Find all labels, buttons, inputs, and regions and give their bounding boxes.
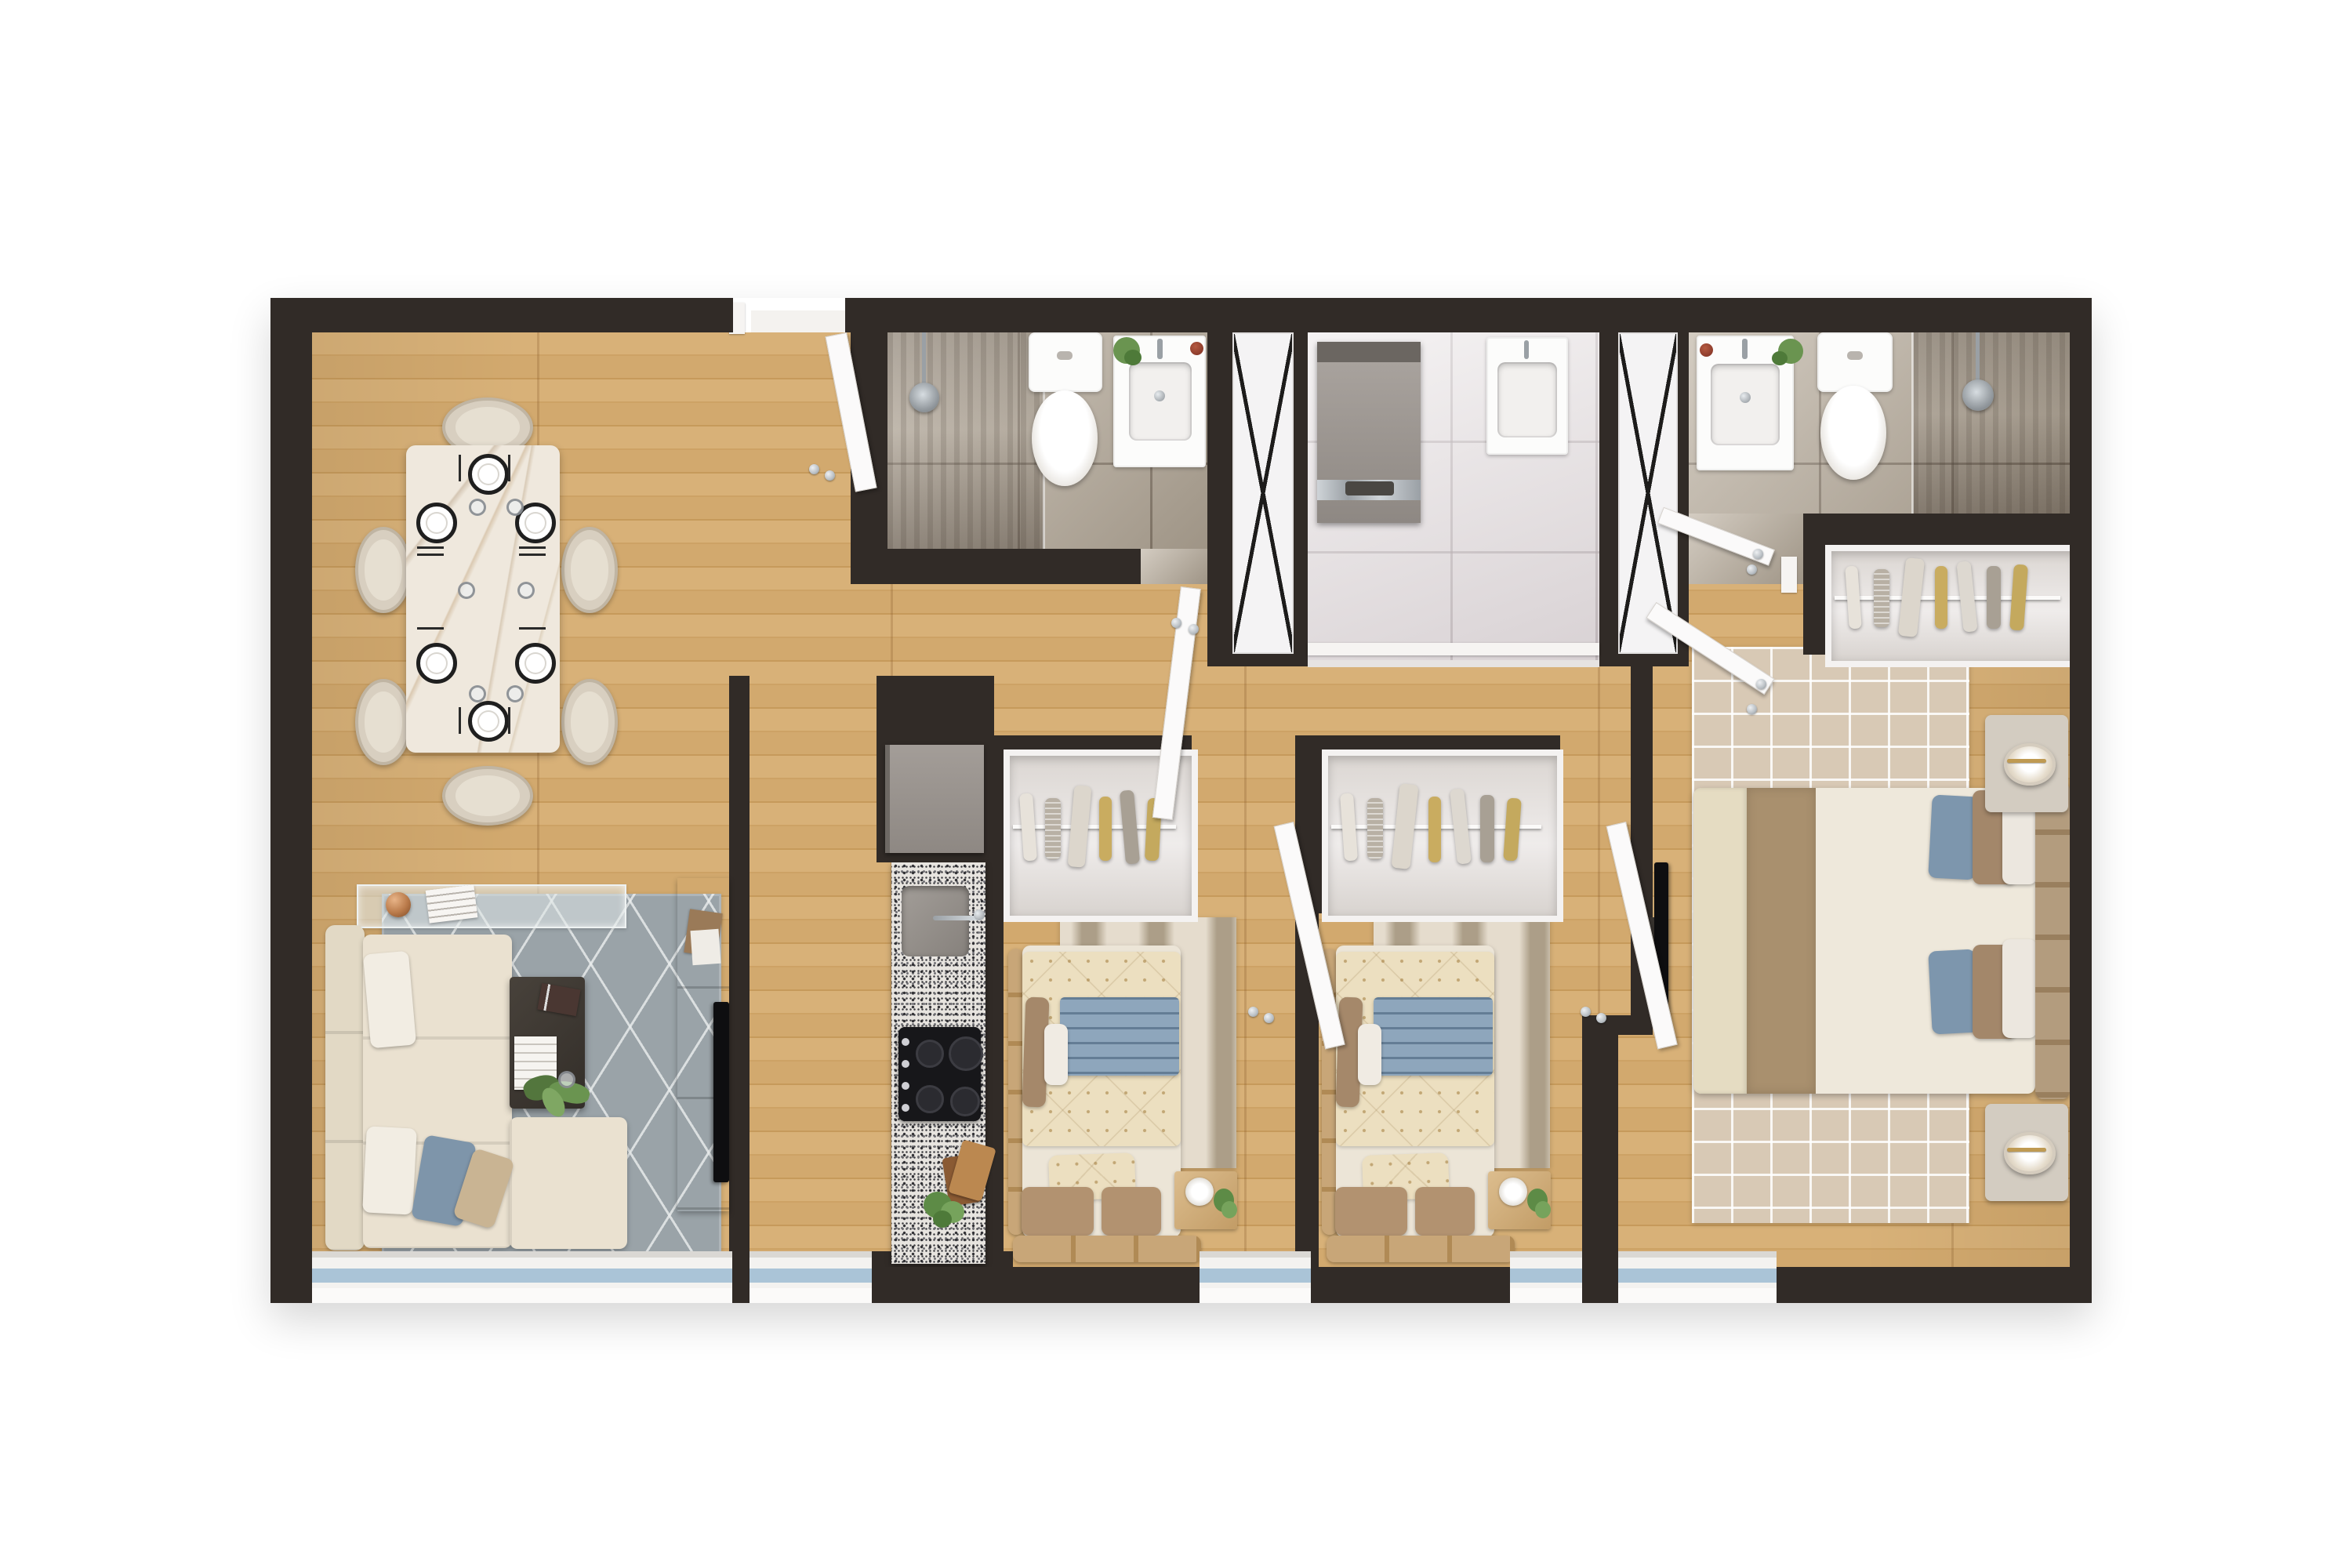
dining-chair-right2	[561, 679, 618, 765]
bedroom1-window	[1200, 1251, 1311, 1303]
bathroom2-bottom-wall	[1803, 514, 2070, 549]
toilet-bowl	[1820, 386, 1886, 480]
cutlery	[417, 554, 444, 556]
chair-seat	[456, 775, 520, 816]
soap-dish	[1190, 342, 1203, 355]
bathroom2-shower-screen	[1911, 332, 1914, 514]
wine-glass	[506, 499, 524, 516]
bottom-pier-living	[732, 1267, 750, 1303]
master-pillow-white	[2002, 939, 2037, 1038]
cutlery	[417, 627, 444, 630]
lamp-gold-bar	[2007, 1148, 2046, 1152]
bathroom1-faucet	[1157, 339, 1163, 359]
laundry-sliding-track	[1308, 660, 1599, 667]
bathroom1-faucet	[1154, 390, 1165, 401]
burner	[916, 1040, 944, 1068]
door-knob	[825, 470, 835, 481]
bedroom2-blue-blanket	[1374, 997, 1493, 1076]
hanging-clothes	[1874, 569, 1889, 627]
place-setting	[515, 643, 556, 684]
door-knob	[1264, 1013, 1274, 1023]
cooktop-knob	[902, 1104, 909, 1112]
door-knob	[1189, 624, 1199, 634]
vanity-plant	[1772, 351, 1788, 365]
toilet-flush-button	[1847, 351, 1863, 360]
wine-glass	[469, 685, 486, 702]
hanging-clothes	[1045, 798, 1061, 859]
door-knob	[1248, 1007, 1258, 1017]
cutlery	[508, 707, 510, 734]
washer-door-hinge	[1345, 481, 1394, 495]
dining-chair-bottom	[442, 766, 533, 826]
master-partition-lower-wall	[1582, 1033, 1618, 1303]
cooktop-knob	[902, 1038, 909, 1046]
wine-glass	[506, 685, 524, 702]
dining-chair-left2	[355, 679, 412, 765]
toilet-flush-button	[1057, 351, 1073, 360]
kitchen-faucet	[933, 916, 978, 920]
bottom-wall-kitchen	[872, 1267, 1200, 1303]
shower-arm	[922, 332, 926, 387]
bottom-wall-bedroom2	[1311, 1267, 1510, 1303]
cutlery	[459, 455, 461, 481]
table-plant	[1221, 1201, 1237, 1218]
decor-sphere	[386, 892, 411, 917]
bathroom1-bottom-wall	[851, 549, 1141, 584]
hanging-clothes	[1099, 797, 1112, 861]
master-headboard	[2035, 782, 2070, 1099]
wine-glass	[469, 499, 486, 516]
sofa-back	[325, 925, 365, 1250]
place-setting	[416, 643, 457, 684]
dining-chair-left1	[355, 527, 412, 613]
sofa-pillow-white	[363, 951, 416, 1049]
master-wardrobe	[1825, 545, 2082, 667]
master-pillow-blue	[1928, 949, 1979, 1035]
right-wall	[2070, 298, 2092, 1303]
wine-glass	[517, 582, 535, 599]
cutlery	[508, 455, 510, 481]
console-papers	[426, 884, 478, 923]
master-wardrobe-jamb-wall	[1803, 545, 1825, 655]
table-glass	[558, 1071, 575, 1088]
door-knob	[1747, 704, 1757, 714]
kitchen-herb-plant	[933, 1210, 952, 1228]
hanging-clothes	[1480, 795, 1494, 862]
shower-head	[909, 383, 939, 412]
nightstand-lamp	[2004, 1132, 2056, 1174]
hall-window	[750, 1251, 872, 1303]
cutlery	[459, 707, 461, 734]
door-knob	[809, 464, 819, 474]
master-door-jamb	[1781, 557, 1797, 593]
chair-seat	[571, 539, 609, 601]
cup	[1499, 1178, 1527, 1206]
bench-cushion	[1335, 1187, 1407, 1236]
bathroom2-faucet	[1742, 339, 1748, 359]
laundry-basin	[1497, 362, 1557, 437]
bedroom2-pillow-white	[1358, 1024, 1381, 1085]
top-wall-right	[845, 298, 2092, 332]
bedroom2-wardrobe	[1322, 750, 1563, 922]
wardrobe-rail	[1835, 596, 2060, 600]
hanging-clothes	[1935, 566, 1947, 629]
place-setting	[468, 701, 509, 742]
bathroom1-entry-floor	[1141, 549, 1207, 584]
hanging-clothes	[1987, 566, 2001, 629]
door-knob	[1753, 549, 1763, 559]
bottom-pier-master	[1582, 1267, 1618, 1303]
bedroom2-window	[1510, 1251, 1582, 1303]
bedroom2-foot-bench	[1327, 1236, 1515, 1262]
bench-cushion	[1415, 1187, 1475, 1236]
top-wall-left	[270, 298, 733, 332]
master-bed-runner	[1747, 788, 1816, 1094]
bathroom1-basin	[1129, 362, 1192, 441]
door-knob	[1756, 679, 1766, 689]
bedroom1-blue-blanket	[1060, 997, 1179, 1076]
hanging-clothes	[1428, 797, 1441, 862]
door-knob	[1581, 1007, 1591, 1017]
living-window	[312, 1251, 732, 1303]
door-knob	[1747, 564, 1757, 575]
chair-seat	[456, 407, 520, 448]
living-tv-wall	[729, 676, 750, 1276]
hanging-clothes	[1367, 798, 1383, 859]
place-setting	[468, 454, 509, 495]
laundry-faucet	[1524, 340, 1529, 359]
sofa-chaise	[510, 1117, 627, 1249]
burner	[949, 1036, 983, 1071]
place-setting	[416, 503, 457, 543]
cooktop-knob	[902, 1082, 909, 1090]
dining-chair-right1	[561, 527, 618, 613]
floor-plan-canvas	[0, 0, 2352, 1568]
left-wall	[270, 298, 312, 1303]
toilet-tank	[1817, 332, 1893, 392]
chair-seat	[365, 691, 403, 753]
cutlery	[519, 627, 546, 630]
master-window	[1618, 1251, 1777, 1303]
chair-seat	[571, 691, 609, 753]
master-folded-blanket	[1693, 788, 1748, 1094]
bathroom1-shower-floor	[887, 332, 1044, 549]
toilet-bowl	[1032, 390, 1098, 486]
shower-arm	[1976, 332, 1980, 384]
wine-glass	[458, 582, 475, 599]
cutlery	[519, 546, 546, 549]
bedroom1-pillow-white	[1044, 1024, 1068, 1085]
cutlery	[417, 546, 444, 549]
refrigerator	[885, 745, 984, 853]
xdoor2-panel	[1618, 332, 1678, 654]
bedroom1-foot-bench	[1013, 1236, 1201, 1262]
door-knob	[1171, 618, 1181, 628]
lamp-gold-bar	[2007, 759, 2046, 763]
soap-dish	[1700, 343, 1713, 357]
door-knob	[1596, 1013, 1606, 1023]
master-partition-jog	[1582, 1015, 1653, 1035]
xdoor1-panel	[1232, 332, 1294, 654]
kitchen-bedroom1-wall	[984, 862, 1004, 1276]
laundry-sliding-track	[1308, 643, 1599, 655]
kitchen-sink	[902, 886, 969, 956]
entry-threshold	[751, 310, 845, 332]
bathroom2-faucet	[1740, 392, 1751, 403]
cooktop-knob	[902, 1060, 909, 1068]
kitchen-faucet-base	[974, 909, 985, 920]
console-book	[691, 929, 721, 965]
sofa-pillow-white	[362, 1126, 417, 1214]
master-pillow-blue	[1928, 795, 1979, 880]
table-plant	[1535, 1201, 1551, 1218]
cup	[1185, 1178, 1214, 1206]
toilet-tank	[1029, 332, 1102, 392]
bench-cushion	[1022, 1187, 1094, 1236]
nightstand-lamp	[2004, 743, 2056, 786]
bench-cushion	[1102, 1187, 1161, 1236]
bathroom2-shower-floor	[1913, 332, 2070, 514]
cutlery	[519, 554, 546, 556]
vanity-plant	[1124, 350, 1142, 365]
burner	[916, 1085, 944, 1113]
chair-seat	[365, 539, 403, 601]
burner	[950, 1087, 980, 1116]
living-tv	[713, 1002, 729, 1182]
bottom-wall-master	[1777, 1267, 2092, 1303]
bathroom2-basin	[1711, 364, 1780, 445]
shower-head	[1962, 379, 1994, 411]
